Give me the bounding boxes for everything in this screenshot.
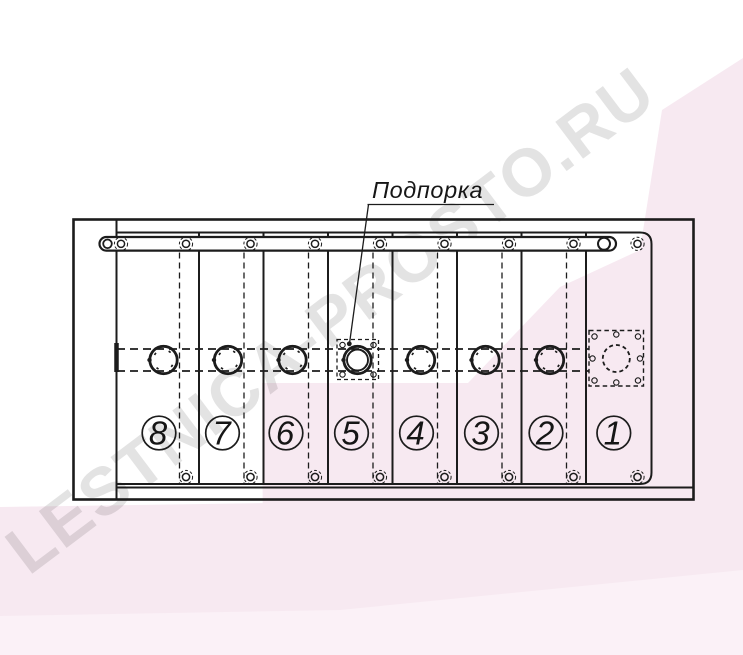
panel-number-badges: 8 7 6 5 4 3 2 — [142, 415, 630, 452]
panel-number-badge: 4 — [400, 415, 434, 452]
rail-right-rod-end — [598, 238, 610, 250]
svg-text:8: 8 — [149, 415, 168, 452]
panel-hole — [405, 346, 435, 374]
svg-text:3: 3 — [471, 415, 490, 452]
panel-solid-edges — [199, 234, 586, 484]
panel-hole — [276, 346, 306, 374]
assembly-drawing: 8 7 6 5 4 3 2 — [0, 0, 743, 655]
panel-1-right-edge — [640, 233, 652, 485]
panel-number-badge: 5 — [335, 415, 369, 452]
bottom-bolt — [631, 470, 644, 483]
support-plate-panel-1 — [589, 331, 644, 387]
bottom-bolt — [438, 470, 451, 483]
rail-left-rod-end — [103, 240, 112, 249]
panel-1-top-bolt — [631, 237, 644, 250]
outer-frame — [74, 220, 694, 500]
bottom-bolt — [567, 470, 580, 483]
panel-number-badge: 3 — [465, 415, 499, 452]
panel-number-badge: 8 — [142, 415, 176, 452]
callout-leader-dot — [347, 341, 352, 346]
panel-stack — [117, 233, 652, 485]
bottom-bolt — [308, 470, 321, 483]
bottom-bolt — [502, 470, 515, 483]
svg-text:2: 2 — [535, 415, 554, 452]
top-rail — [100, 237, 617, 251]
panel-hole — [147, 346, 177, 374]
svg-text:4: 4 — [406, 415, 424, 452]
bottom-bolt — [244, 470, 257, 483]
panel-number-badge: 7 — [206, 415, 240, 452]
panel-hole — [212, 346, 242, 374]
support-callout: Подпорка — [347, 177, 494, 346]
svg-text:5: 5 — [341, 415, 360, 452]
svg-text:6: 6 — [276, 415, 295, 452]
panel-number-badge: 1 — [597, 415, 631, 452]
panel-hidden-edges — [180, 253, 567, 484]
bottom-bolt — [373, 470, 386, 483]
panel-number-badge: 6 — [269, 415, 303, 452]
panel-hole — [469, 346, 499, 374]
bottom-bolt — [179, 470, 192, 483]
callout-leader-line — [350, 205, 369, 344]
panel-hole — [534, 346, 564, 374]
svg-text:1: 1 — [604, 415, 622, 452]
svg-text:7: 7 — [212, 415, 232, 452]
panel-number-badge: 2 — [529, 415, 563, 452]
support-bracket-panel-5 — [337, 340, 379, 380]
page: LESTNICA-PROSTO.RU — [0, 0, 743, 655]
hole-axis-hidden-lines — [117, 349, 589, 371]
support-label: Подпорка — [372, 177, 483, 203]
bottom-bolts — [179, 470, 644, 483]
